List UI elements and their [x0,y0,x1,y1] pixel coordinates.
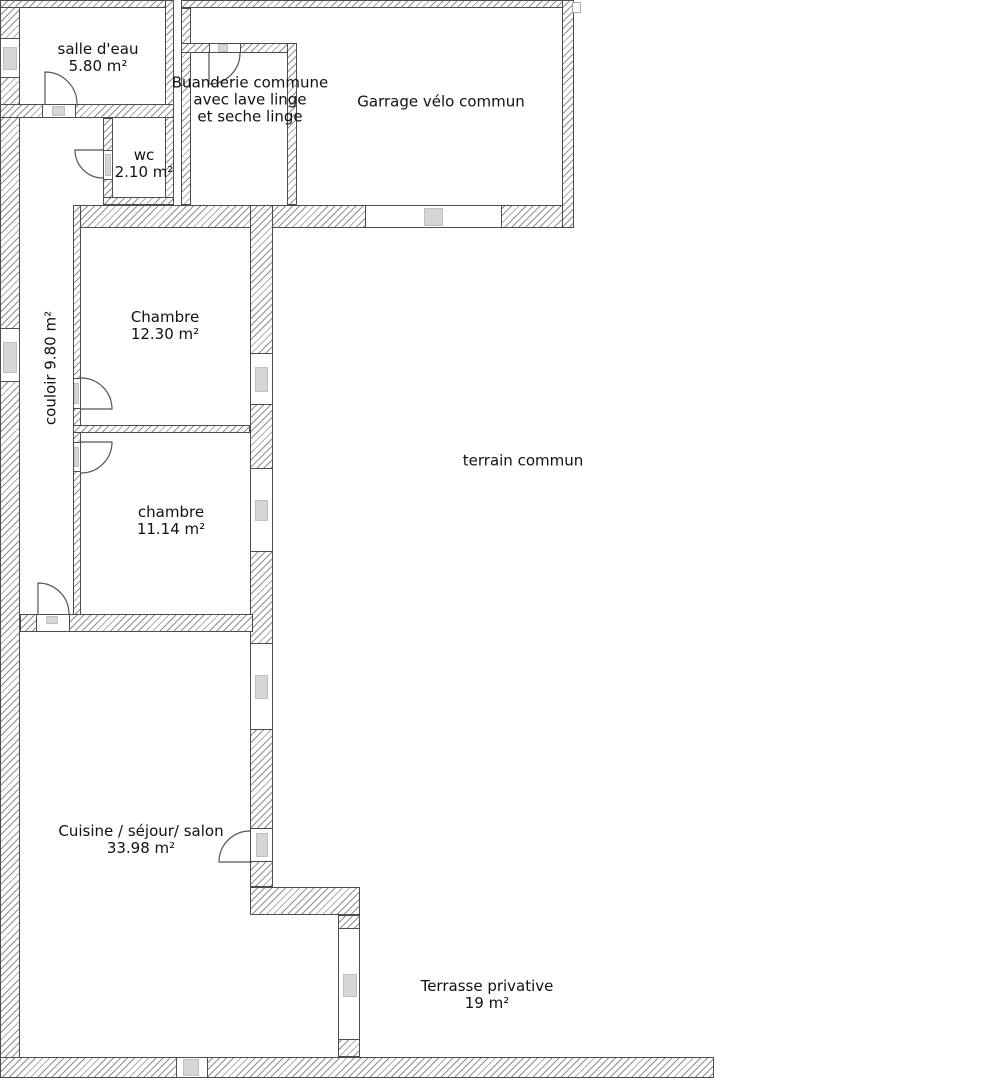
room-name-buanderie-line1: Buanderie commune [172,75,328,92]
room-area-wc: 2.10 m² [115,164,174,181]
room-label-chambre-2: chambre 11.14 m² [137,504,205,538]
room-name-chambre-2: chambre [137,504,205,521]
room-name-garage: Garrage vélo commun [357,94,524,111]
room-name-buanderie-line3: et seche linge [172,109,328,126]
wc-bottom-wall [103,197,174,205]
window-terrasse-icon [343,974,357,997]
room-label-couloir: couloir 9.80 m² [43,311,60,425]
exterior-left-wall [0,0,20,1078]
area-label-terrain-commun: terrain commun [463,453,583,470]
exterior-bottom-wall [0,1057,714,1078]
door-wc-threshold-icon [105,154,111,176]
room-label-salle-deau: salle d'eau 5.80 m² [58,41,139,75]
door-swing-wc-icon [75,150,103,178]
cuisine-terrasse-elbow-wall [250,887,360,915]
garage-corner-notch [572,2,581,13]
floor-plan: salle d'eau 5.80 m² Buanderie commune av… [0,0,1000,1080]
door-buanderie-threshold-icon [218,44,228,52]
window-cuisine-icon [255,675,268,699]
salle-deau-bottom-wall [0,104,174,118]
garage-entrance-icon [424,208,443,226]
door-cuisine-terrain-icon [256,833,268,857]
door-chambre-1-threshold-icon [74,383,79,404]
door-couloir-cuisine-threshold-icon [46,616,58,624]
room-area-cuisine: 33.98 m² [58,840,223,857]
room-name-chambre-1: Chambre [131,309,199,326]
garage-right-wall [562,0,574,228]
inter-chambres-wall [73,425,250,433]
room-name-buanderie-line2: avec lave linge [172,92,328,109]
area-name-terrasse: Terrasse privative [421,978,554,995]
window-couloir-icon [3,342,17,373]
door-swing-salle-deau-icon [45,72,77,104]
window-salle-deau-icon [3,47,17,70]
room-label-cuisine: Cuisine / séjour/ salon 33.98 m² [58,823,223,857]
room-area-salle-deau: 5.80 m² [58,58,139,75]
area-size-terrasse: 19 m² [421,995,554,1012]
room-name-salle-deau: salle d'eau [58,41,139,58]
door-swing-chambre-1-icon [81,378,112,409]
room-name-couloir: couloir 9.80 m² [43,311,60,425]
door-salle-deau-threshold-icon [52,106,65,116]
room-label-chambre-1: Chambre 12.30 m² [131,309,199,343]
room-label-garage: Garrage vélo commun [357,94,524,111]
door-swing-couloir-cuisine-icon [38,583,69,614]
door-cuisine-bottom-icon [183,1059,199,1076]
room-area-chambre-1: 12.30 m² [131,326,199,343]
door-swing-chambre-2-icon [81,442,112,473]
room-name-wc: wc [115,147,174,164]
garage-top-wall [181,0,574,8]
room-label-wc: wc 2.10 m² [115,147,174,181]
window-chambre-1-icon [255,367,268,392]
room-name-cuisine: Cuisine / séjour/ salon [58,823,223,840]
door-swing-cuisine-terrain-icon [219,831,250,862]
salle-deau-top-wall [0,0,174,8]
room-area-chambre-2: 11.14 m² [137,521,205,538]
door-chambre-2-threshold-icon [74,447,79,467]
window-chambre-2-icon [255,500,268,521]
area-name-terrain-commun: terrain commun [463,453,583,470]
couloir-chambres-wall [73,205,81,632]
room-label-buanderie: Buanderie commune avec lave linge et sec… [172,75,328,126]
area-label-terrasse: Terrasse privative 19 m² [421,978,554,1012]
